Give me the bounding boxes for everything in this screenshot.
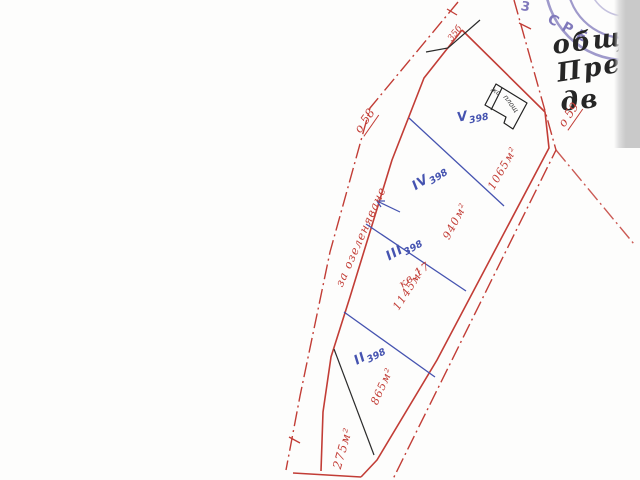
- scan-edge-strip: [614, 0, 640, 148]
- plan-linework: [0, 0, 640, 480]
- cadastral-plan-scan: 3 СРЕ общ Пре дв о 58 о 59 за озеленяван…: [0, 0, 640, 480]
- axis-tick-marks: [289, 9, 531, 443]
